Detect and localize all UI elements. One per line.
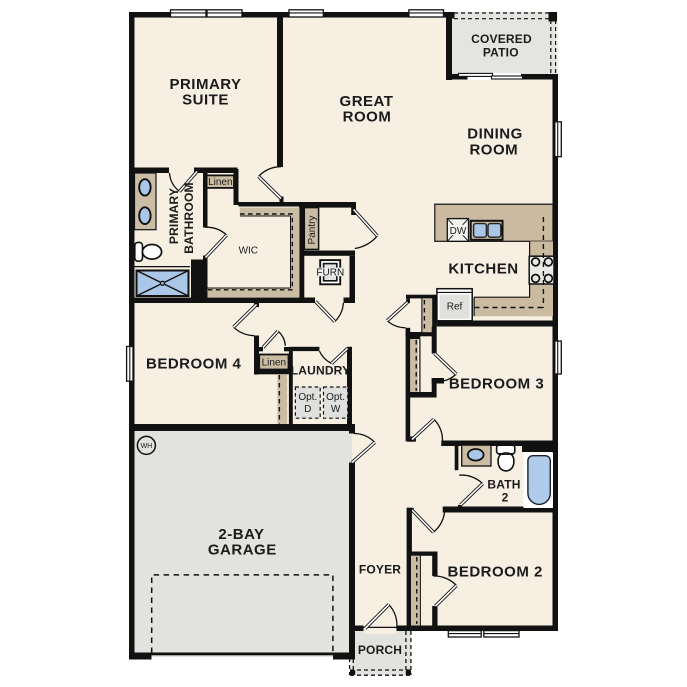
svg-text:BATHROOM: BATHROOM [182, 182, 196, 253]
svg-text:2: 2 [502, 491, 509, 505]
svg-text:GREAT: GREAT [340, 93, 394, 110]
svg-text:BEDROOM 4: BEDROOM 4 [146, 356, 242, 373]
svg-text:PRIMARY: PRIMARY [169, 76, 241, 93]
svg-text:COVERED: COVERED [471, 32, 532, 46]
svg-text:KITCHEN: KITCHEN [448, 261, 518, 278]
svg-text:D: D [304, 404, 311, 415]
svg-text:FOYER: FOYER [359, 563, 401, 577]
svg-text:Opt.: Opt. [298, 392, 317, 403]
svg-text:SUITE: SUITE [182, 92, 229, 109]
svg-text:Linen: Linen [262, 358, 286, 369]
svg-text:BEDROOM 3: BEDROOM 3 [449, 376, 544, 393]
svg-text:PRIMARY: PRIMARY [167, 188, 181, 244]
svg-text:PORCH: PORCH [358, 643, 402, 657]
svg-text:Pantry: Pantry [307, 216, 318, 245]
svg-text:Opt.: Opt. [326, 392, 345, 403]
svg-text:Ref: Ref [447, 302, 463, 313]
svg-text:DW: DW [450, 226, 467, 237]
svg-text:2-BAY: 2-BAY [218, 526, 264, 543]
svg-text:BATH: BATH [487, 478, 520, 492]
svg-text:LAUNDRY: LAUNDRY [291, 363, 351, 377]
svg-text:ROOM: ROOM [343, 109, 392, 126]
svg-text:WIC: WIC [239, 246, 258, 257]
svg-text:Linen: Linen [208, 177, 232, 188]
svg-text:BEDROOM 2: BEDROOM 2 [448, 564, 543, 581]
svg-text:PATIO: PATIO [483, 45, 519, 59]
svg-text:FURN: FURN [316, 267, 344, 278]
svg-text:WH: WH [141, 443, 153, 450]
svg-text:GARAGE: GARAGE [208, 542, 277, 559]
svg-text:ROOM: ROOM [469, 141, 518, 158]
svg-text:W: W [331, 404, 341, 415]
svg-text:DINING: DINING [467, 126, 523, 143]
